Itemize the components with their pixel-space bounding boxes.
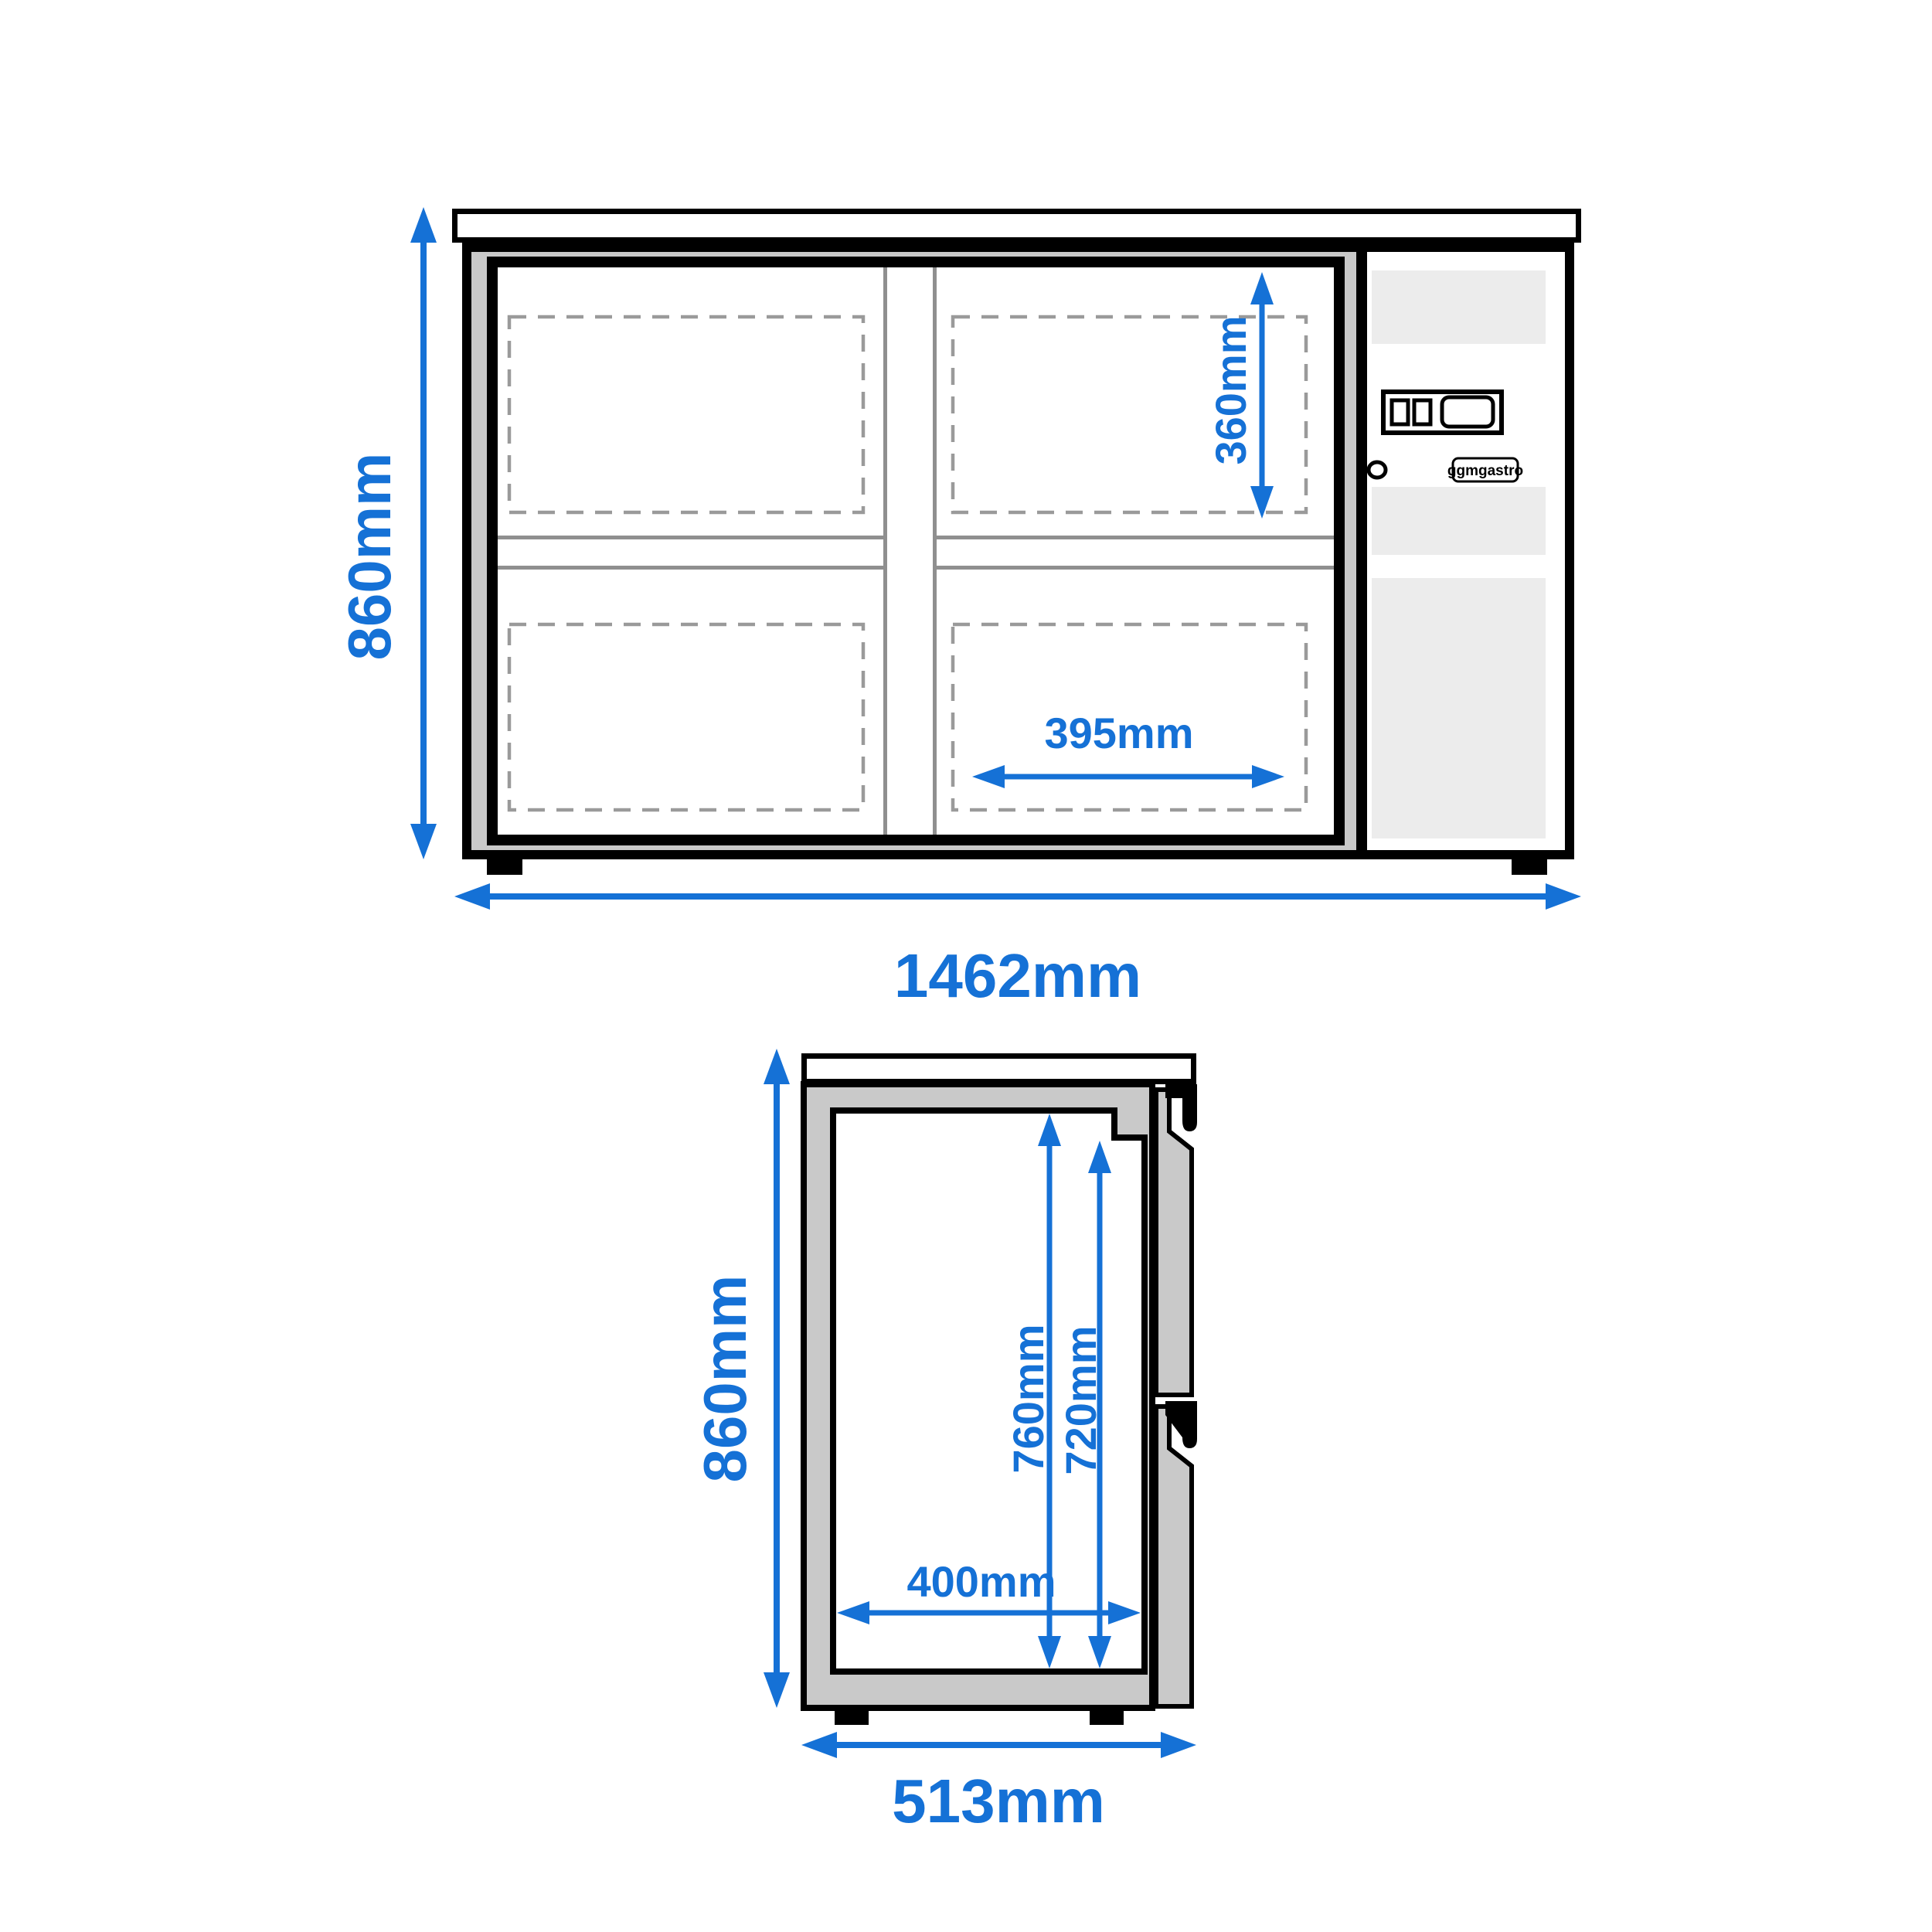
interior-height-front-dimension: 720mm (1056, 1141, 1111, 1668)
left-door-rail-bottom (498, 566, 883, 570)
interior-depth-arrow-right-icon (1108, 1601, 1141, 1624)
front-height-dim-arrow-up-icon (410, 207, 437, 243)
vent-panel-top (1372, 270, 1546, 344)
side-door-lower-body (1156, 1406, 1192, 1706)
side-height-dimension: 860mm (691, 1049, 790, 1708)
interior-height-rear-arrow-down-icon (1038, 1636, 1061, 1668)
side-door-lower-segment (1156, 1401, 1197, 1706)
right-door-rail-bottom (937, 566, 1334, 570)
side-countertop (804, 1056, 1194, 1082)
brand-badge-label: ggmgastro (1447, 463, 1523, 479)
front-height-dimension: 860mm (335, 207, 437, 859)
front-height-label: 860mm (335, 453, 403, 661)
interior-height-rear-arrow-up-icon (1038, 1114, 1061, 1146)
side-foot-left (835, 1709, 869, 1725)
vent-panel-bottom (1372, 578, 1546, 838)
side-door-upper-body (1156, 1090, 1192, 1395)
side-depth-label: 513mm (892, 1767, 1105, 1835)
control-panel (1383, 392, 1502, 433)
left-door-right-edge (883, 267, 887, 835)
shelf-height-label: 360mm (1206, 315, 1255, 464)
side-door-upper-segment (1156, 1084, 1197, 1395)
control-button-2 (1414, 400, 1430, 424)
front-height-dim-arrow-down-icon (410, 824, 437, 859)
right-door-rail-top (937, 536, 1334, 539)
front-foot-right (1512, 859, 1547, 875)
side-foot-right (1090, 1709, 1124, 1725)
interior-depth-dimension: 400mm (837, 1557, 1141, 1624)
front-width-dim-arrow-left-icon (454, 883, 490, 910)
shelf-width-label: 395mm (1044, 709, 1193, 757)
interior-height-front-arrow-down-icon (1088, 1636, 1111, 1668)
side-height-label: 860mm (691, 1275, 759, 1483)
front-view: 860mm 360mm 395mm (335, 207, 1581, 1010)
brand-badge: ggmgastro (1447, 458, 1523, 481)
lock-icon (1369, 462, 1386, 478)
front-foot-left (487, 859, 522, 875)
side-view: 860mm 760mm 720mm (691, 1049, 1197, 1835)
front-width-label: 1462mm (894, 941, 1141, 1010)
front-width-dim-arrow-right-icon (1546, 883, 1581, 910)
interior-depth-arrow-left-icon (837, 1601, 869, 1624)
interior-height-rear-label: 760mm (1004, 1324, 1053, 1473)
side-depth-dimension: 513mm (801, 1732, 1196, 1835)
left-door-rail-top (498, 536, 883, 539)
vent-panel-middle (1372, 487, 1546, 555)
interior-depth-label: 400mm (906, 1557, 1056, 1606)
interior-height-front-arrow-up-icon (1088, 1141, 1111, 1173)
control-display (1442, 397, 1493, 427)
interior-height-front-label: 720mm (1056, 1325, 1105, 1475)
technical-drawing: 860mm 360mm 395mm (0, 0, 1932, 1932)
side-depth-arrow-left-icon (801, 1732, 837, 1758)
control-button-1 (1392, 400, 1408, 424)
side-height-dim-arrow-up-icon (764, 1049, 790, 1084)
side-height-dim-arrow-down-icon (764, 1672, 790, 1708)
side-depth-arrow-right-icon (1161, 1732, 1196, 1758)
right-door-left-edge (933, 267, 937, 835)
machine-compartment-divider (1356, 252, 1367, 850)
front-width-dimension: 1462mm (454, 883, 1581, 1010)
front-countertop (455, 212, 1579, 240)
